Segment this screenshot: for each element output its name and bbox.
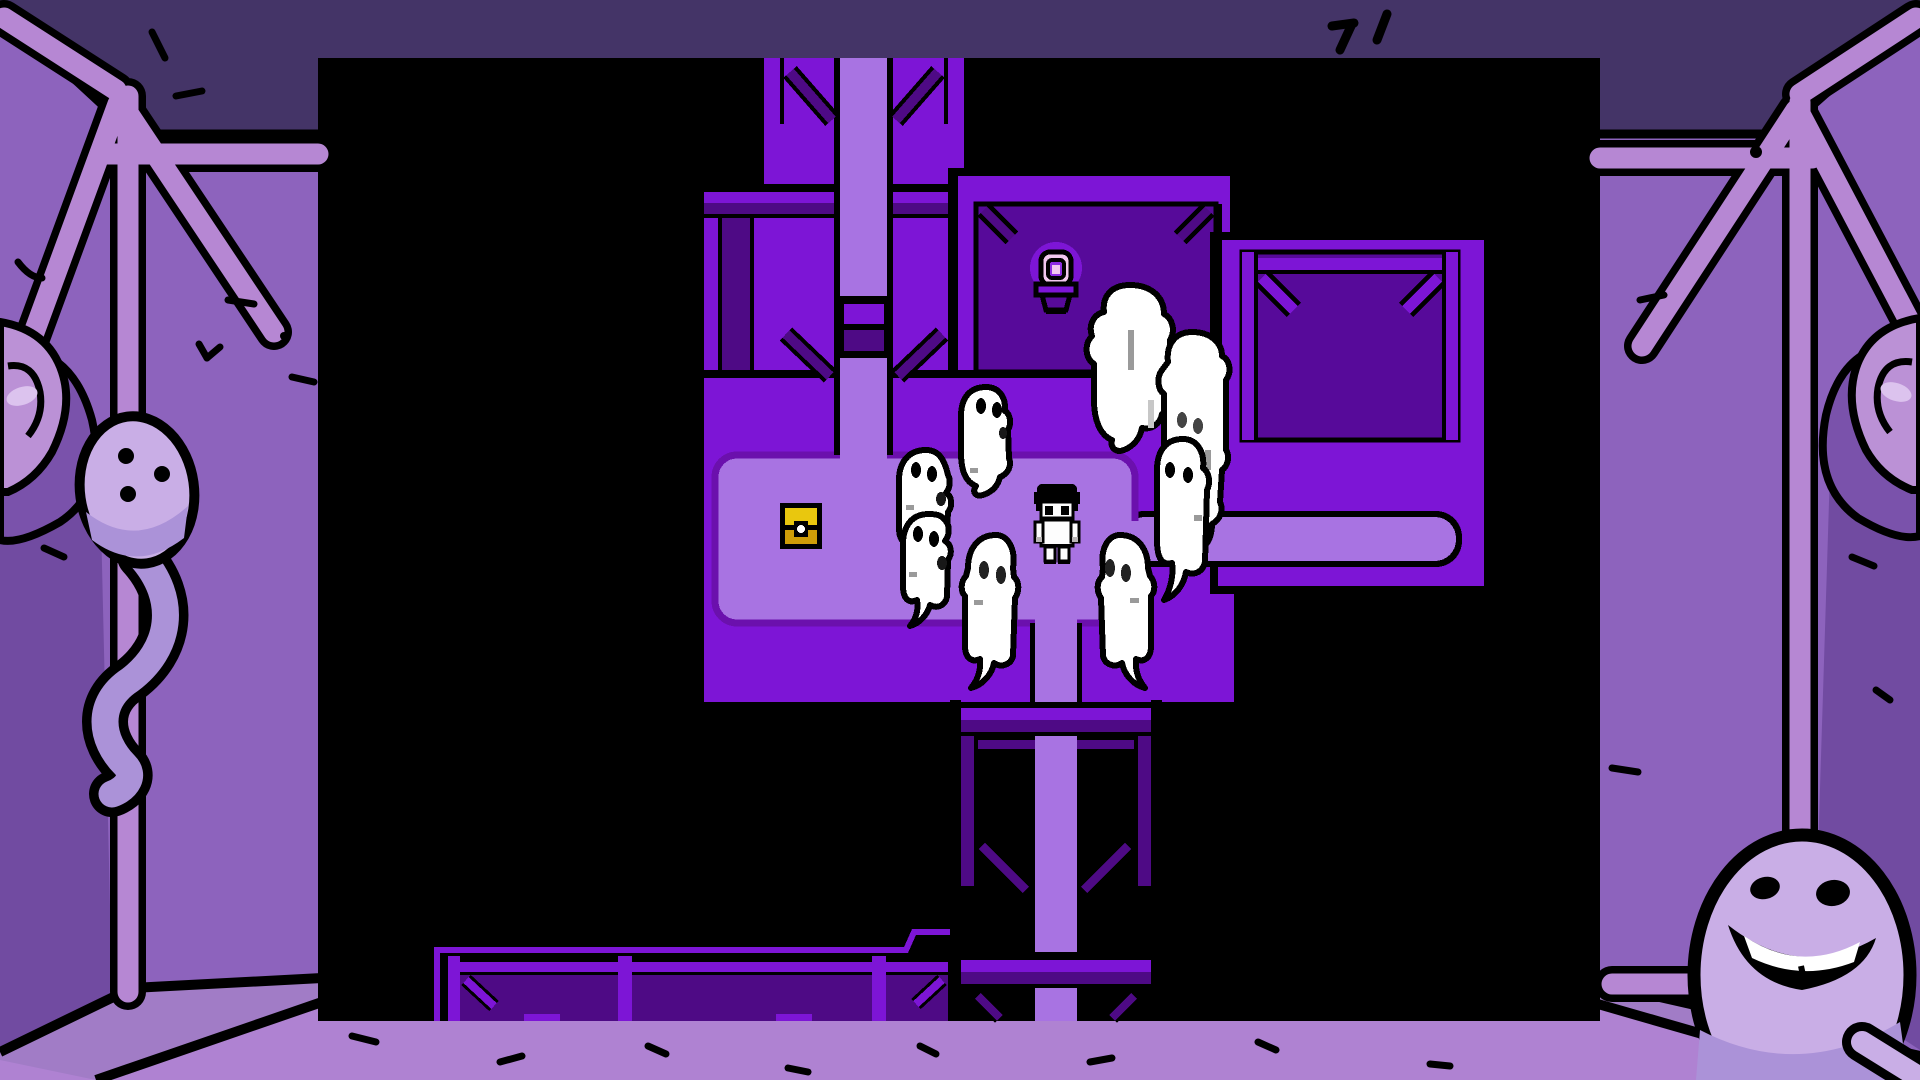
ghost-face-dot xyxy=(118,448,134,464)
treasure-chest-sprite xyxy=(780,503,822,549)
ghost-face-dot xyxy=(120,486,136,502)
top-path xyxy=(834,58,893,460)
wall-dot xyxy=(280,332,288,340)
ghost-face-dot xyxy=(154,466,170,482)
door-sprite xyxy=(836,296,892,358)
pole-knot xyxy=(1750,146,1762,158)
game-screenshot: Top-down pixel RPG dungeon: a player cha… xyxy=(0,0,1920,1080)
game-screen[interactable] xyxy=(318,58,1600,1021)
